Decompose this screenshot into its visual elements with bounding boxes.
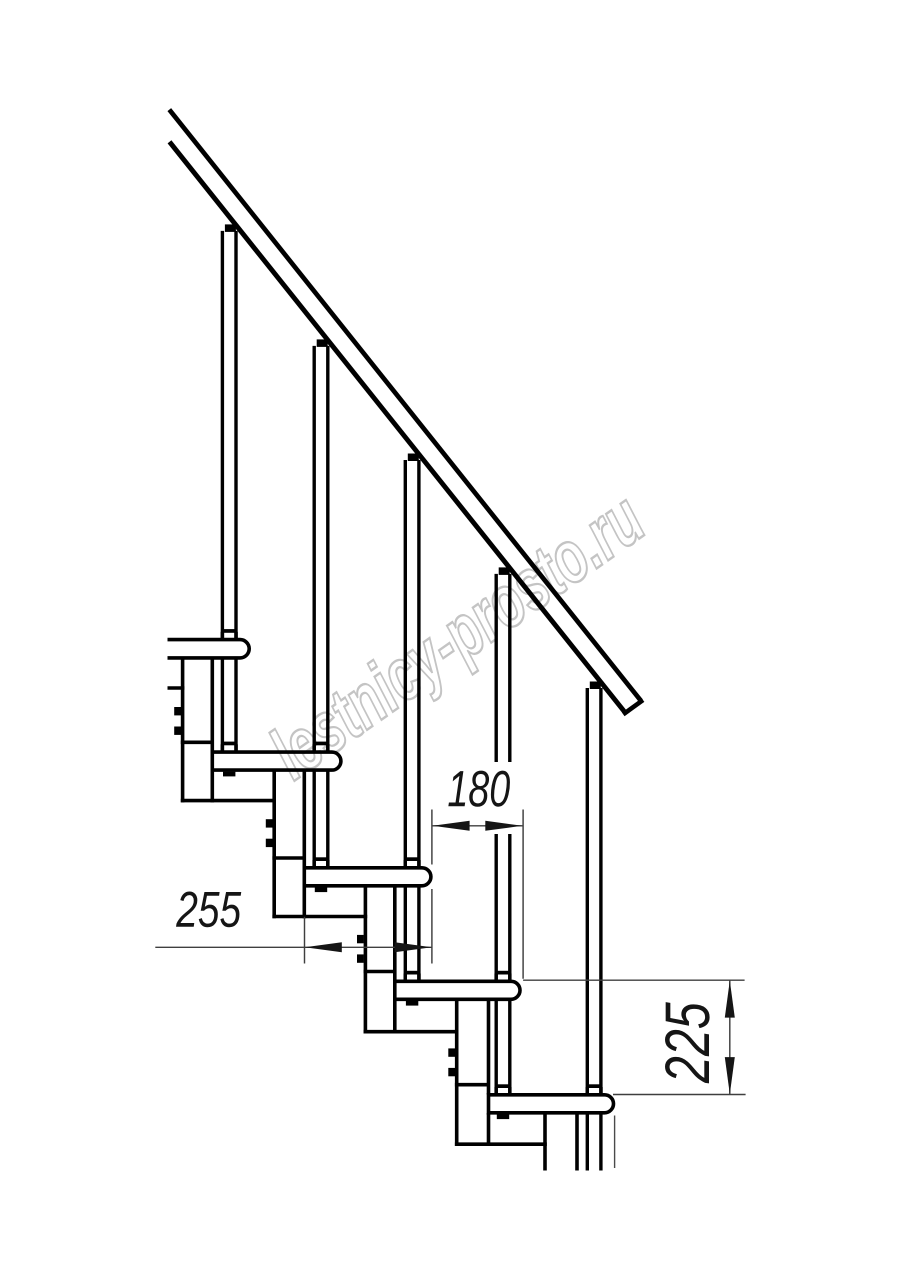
svg-text:225: 225 — [653, 1002, 723, 1084]
svg-text:180: 180 — [447, 760, 510, 817]
svg-text:255: 255 — [175, 881, 241, 938]
